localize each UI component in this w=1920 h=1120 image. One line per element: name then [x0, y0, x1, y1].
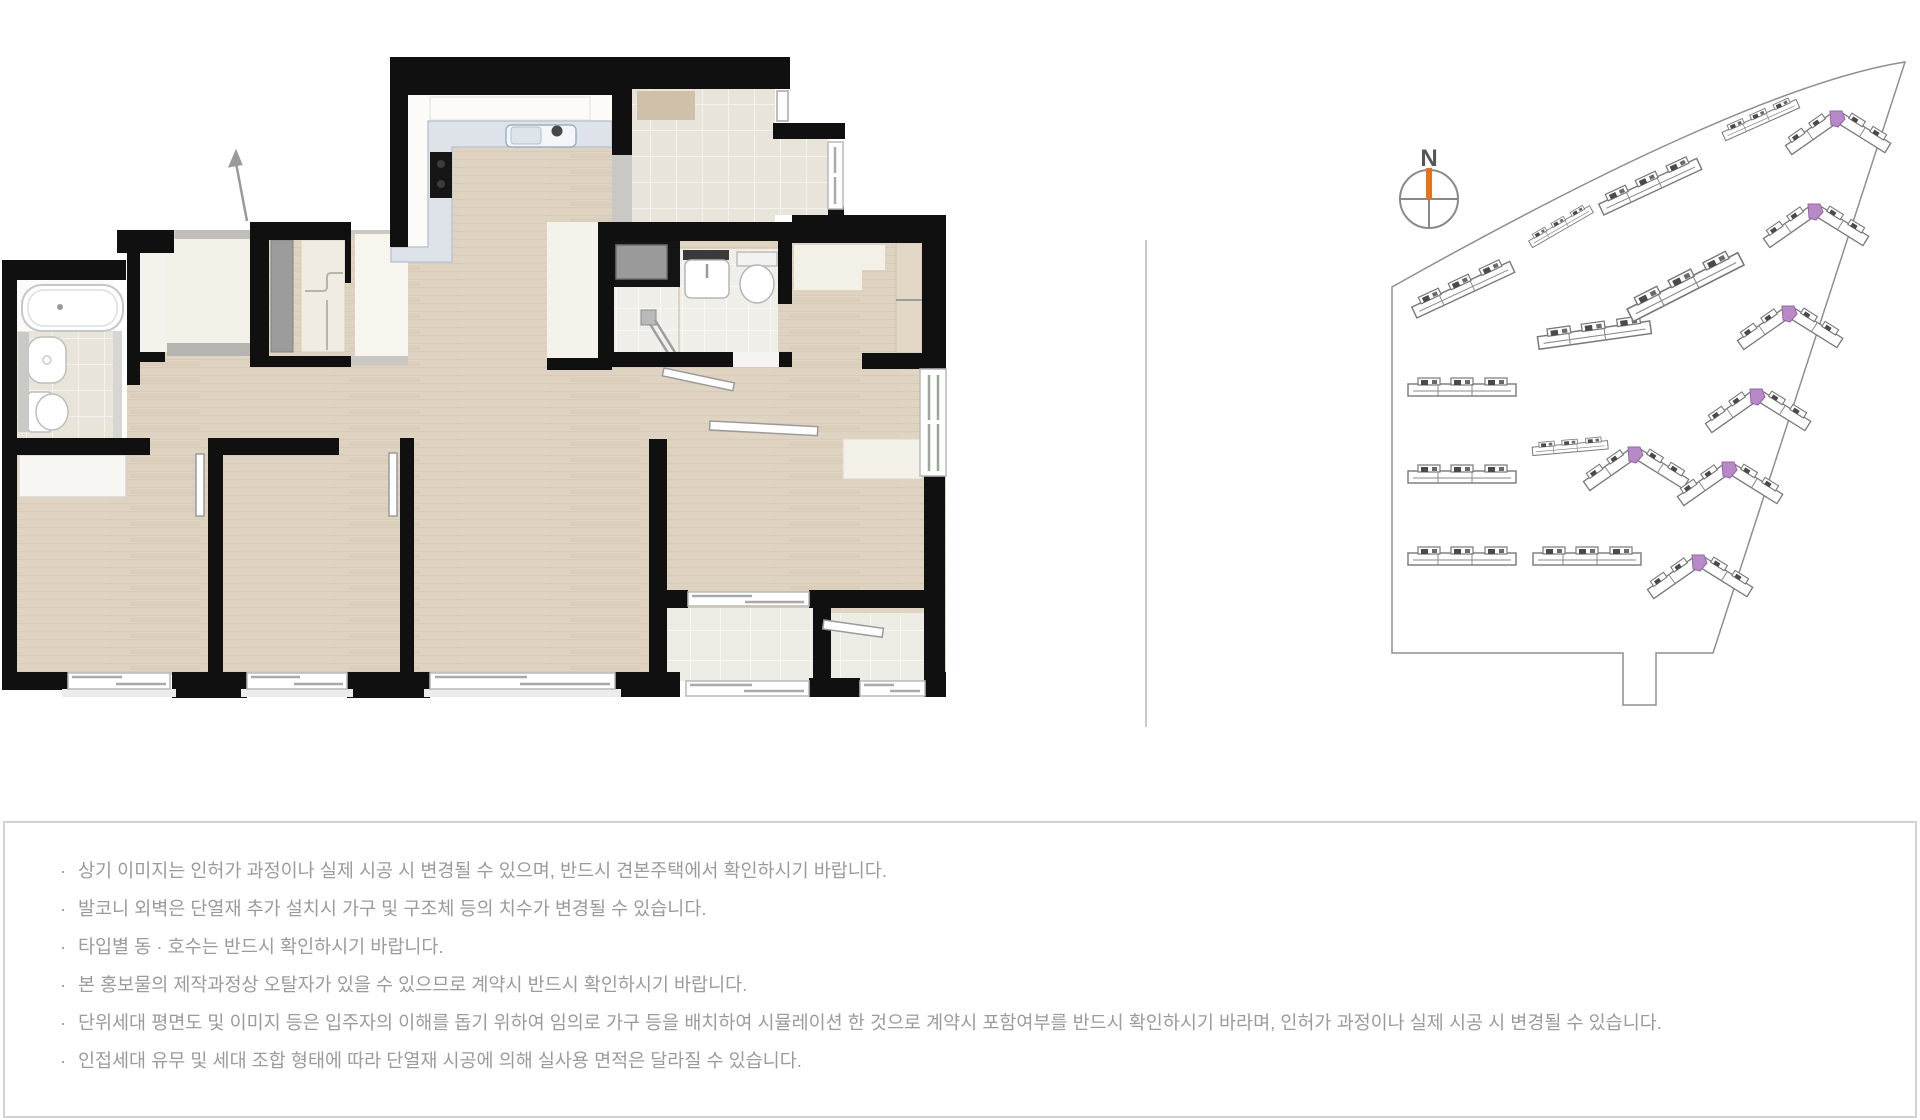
svg-text:·: ·: [60, 1050, 66, 1071]
svg-text:·: ·: [60, 898, 66, 919]
svg-text:·: ·: [60, 860, 66, 881]
svg-text:·: ·: [60, 936, 66, 957]
svg-text:·: ·: [60, 974, 66, 995]
svg-text:인접세대 유무 및 세대 조합 형태에 따라 단열재 시공에: 인접세대 유무 및 세대 조합 형태에 따라 단열재 시공에 의해 실사용 면적…: [78, 1050, 802, 1071]
svg-text:단위세대 평면도 및 이미지 등은 입주자의 이해를 돕기: 단위세대 평면도 및 이미지 등은 입주자의 이해를 돕기 위하여 임의로 가구…: [78, 1012, 1662, 1033]
svg-text:발코니 외벽은 단열재 추가 설치시 가구 및 구조체 등의: 발코니 외벽은 단열재 추가 설치시 가구 및 구조체 등의 치수가 변경될 수…: [78, 898, 706, 919]
svg-text:타입별 동 · 호수는 반드시 확인하시기 바랍니다.: 타입별 동 · 호수는 반드시 확인하시기 바랍니다.: [78, 936, 444, 957]
svg-text:본 홍보물의 제작과정상 오탈자가 있을 수 있으므로 계약: 본 홍보물의 제작과정상 오탈자가 있을 수 있으므로 계약시 반드시 확인하시…: [78, 974, 747, 995]
svg-text:N: N: [1420, 145, 1437, 172]
svg-text:상기 이미지는 인허가 과정이나 실제 시공 시 변경될 수: 상기 이미지는 인허가 과정이나 실제 시공 시 변경될 수 있으며, 반드시 …: [78, 860, 887, 881]
svg-text:·: ·: [60, 1012, 66, 1033]
